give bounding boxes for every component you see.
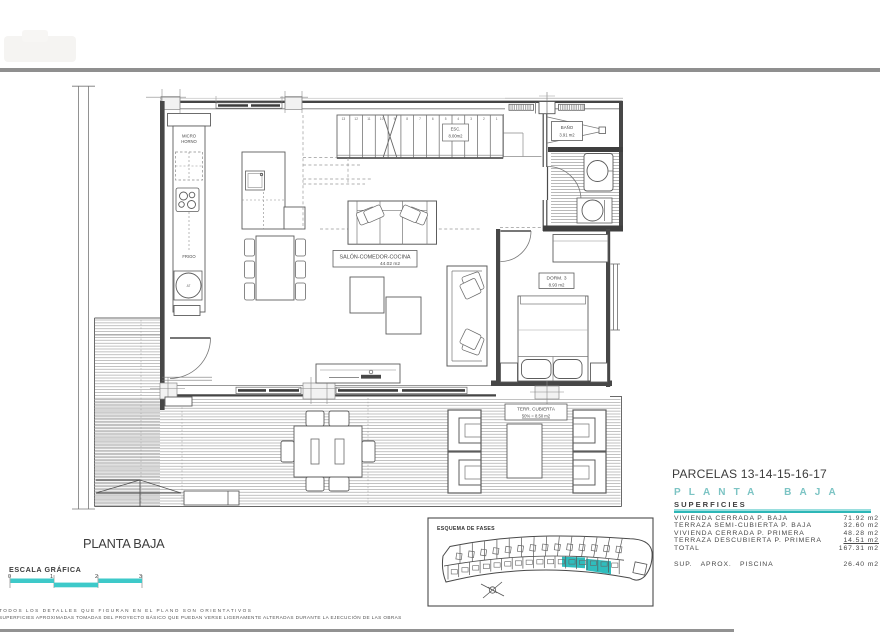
svg-text:44.02 m2: 44.02 m2 (380, 261, 400, 267)
svg-text:1: 1 (496, 117, 498, 121)
svg-text:9: 9 (394, 117, 396, 121)
svg-text:HORNO: HORNO (181, 139, 197, 144)
svg-text:MICRO: MICRO (182, 134, 197, 139)
svg-text:ESQUEMA DE FASES: ESQUEMA DE FASES (437, 526, 495, 532)
svg-text:BAÑO: BAÑO (561, 125, 574, 130)
svg-text:SALÓN-COMEDOR-COCINA: SALÓN-COMEDOR-COCINA (340, 254, 411, 261)
svg-text:ESC.: ESC. (451, 127, 461, 132)
svg-text:8.93 m2: 8.93 m2 (549, 283, 565, 288)
svg-text:5: 5 (445, 117, 447, 121)
svg-text:FRIGO: FRIGO (182, 254, 196, 259)
svg-text:7: 7 (419, 117, 421, 121)
svg-text:6: 6 (432, 117, 434, 121)
svg-text:50% = 8.50 m2: 50% = 8.50 m2 (522, 414, 551, 419)
svg-text:2: 2 (95, 574, 98, 580)
svg-text:4: 4 (457, 117, 459, 121)
svg-text:11: 11 (367, 117, 371, 121)
svg-text:3: 3 (470, 117, 472, 121)
svg-text:3.91 m2: 3.91 m2 (559, 133, 575, 138)
svg-text:2: 2 (483, 117, 485, 121)
svg-text:13: 13 (342, 117, 346, 121)
svg-text:AT: AT (187, 284, 191, 288)
svg-text:DORM. 3: DORM. 3 (547, 276, 567, 282)
svg-text:TERR. CUBIERTA: TERR. CUBIERTA (517, 407, 556, 412)
svg-text:10: 10 (380, 117, 384, 121)
svg-text:8.00m2: 8.00m2 (449, 134, 464, 139)
svg-text:8: 8 (406, 117, 408, 121)
svg-text:12: 12 (354, 117, 358, 121)
